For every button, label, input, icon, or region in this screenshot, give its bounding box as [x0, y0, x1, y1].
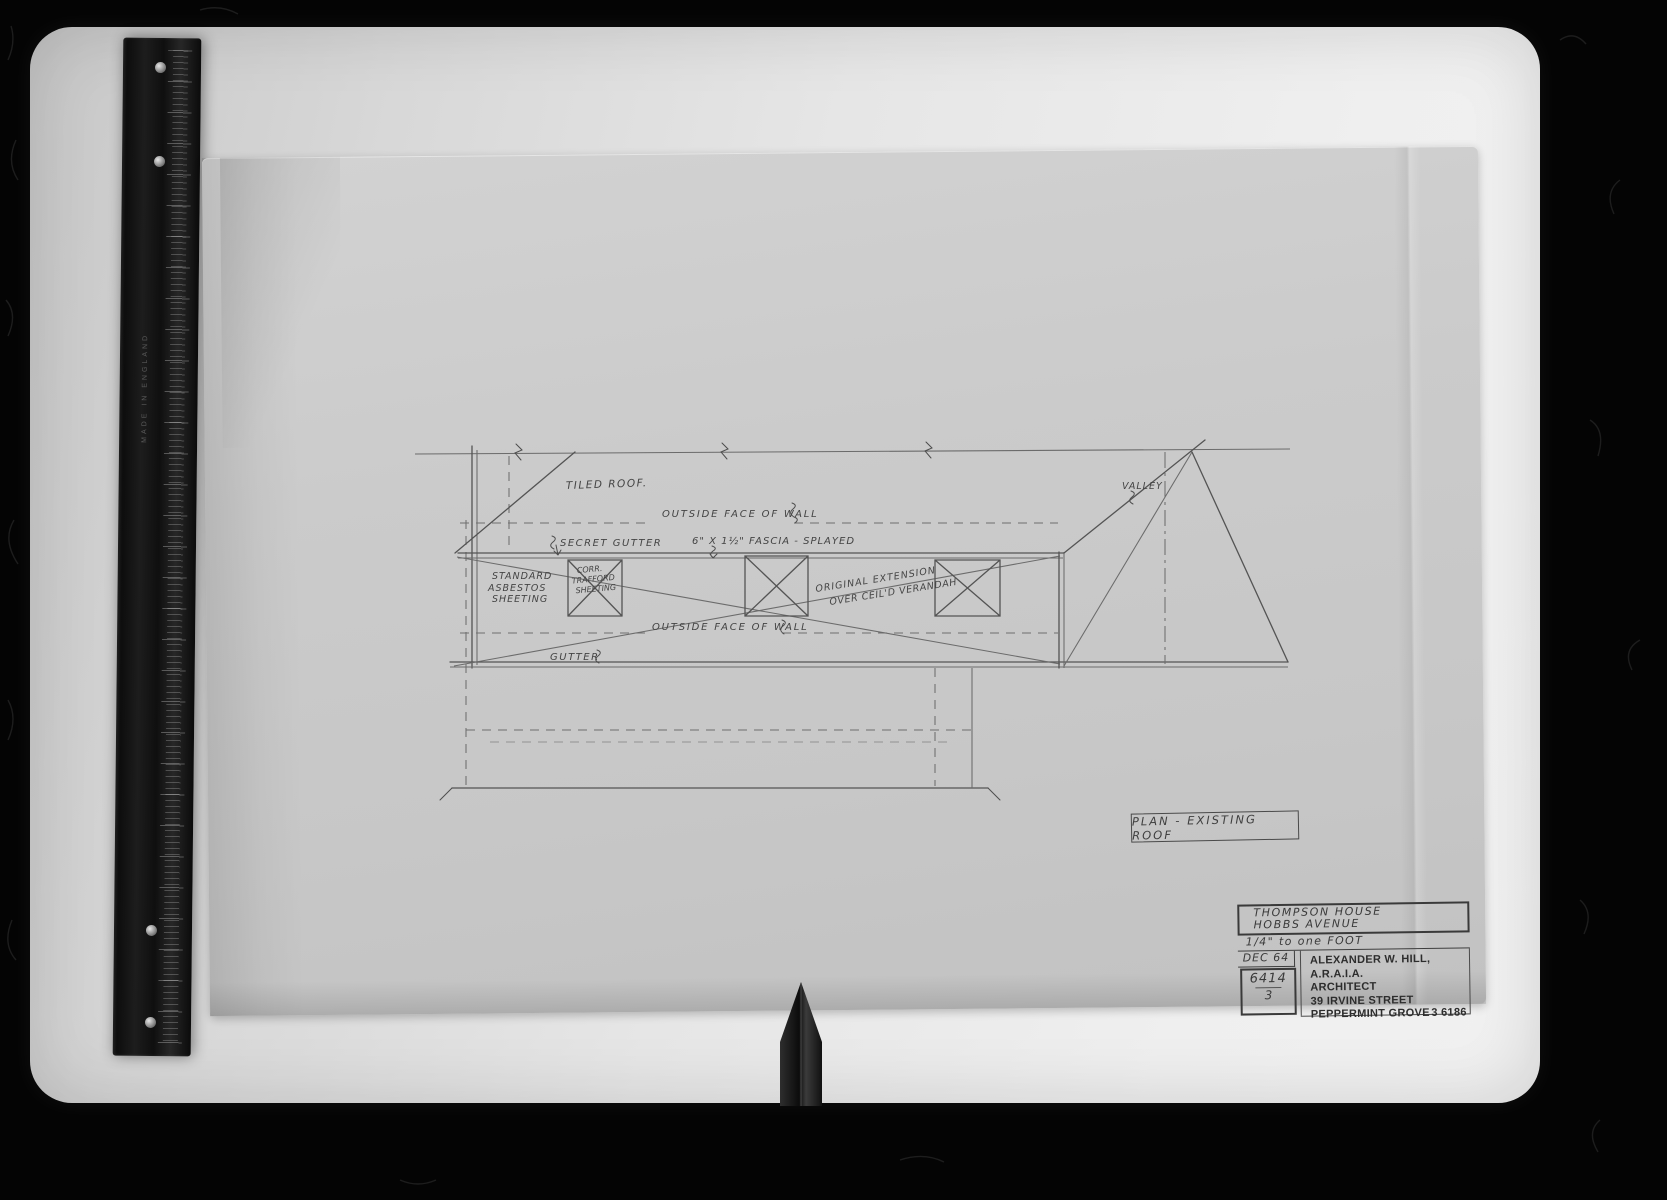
- photograph-of-roof-plan: MADE IN ENGLAND: [0, 0, 1667, 1200]
- title-block: THOMPSON HOUSE HOBBS AVENUE 1/4" to one …: [1237, 901, 1471, 1016]
- architect-stamp: ALEXANDER W. HILL, A.R.A.I.A. ARCHITECT …: [1310, 952, 1467, 1022]
- date-cell: DEC 64: [1238, 951, 1295, 968]
- project-line-2: HOBBS AVENUE: [1253, 916, 1467, 931]
- label-standard-sheeting-3: SHEETING: [492, 594, 548, 605]
- sheet-number: 3: [1242, 988, 1294, 1003]
- label-standard-sheeting-2: ASBESTOS: [487, 583, 546, 594]
- print-pointer-tab: [768, 978, 832, 1108]
- scale-row: 1/4" to one FOOT: [1238, 932, 1470, 951]
- label-valley: VALLEY: [1122, 481, 1163, 492]
- plan-title-box: PLAN - EXISTING ROOF: [1131, 810, 1300, 842]
- label-standard-sheeting-1: STANDARD: [492, 571, 552, 582]
- title-block-vertical-rule: [1300, 951, 1302, 1016]
- hand-lettered-labels: TILED ROOF. OUTSIDE FACE OF WALL SECRET …: [487, 477, 1163, 663]
- label-tiled-roof: TILED ROOF.: [566, 477, 648, 492]
- architect-suburb: PEPPERMINT GROVE: [1311, 1007, 1430, 1022]
- job-number: 6414: [1242, 971, 1294, 987]
- label-fascia: 6" X 1½" FASCIA - SPLAYED: [692, 535, 855, 547]
- project-name-box: THOMPSON HOUSE HOBBS AVENUE: [1237, 901, 1469, 935]
- job-number-box: 6414 3: [1240, 968, 1297, 1016]
- architect-phone: 3 6186: [1431, 1007, 1467, 1021]
- label-outside-face-wall-bottom: OUTSIDE FACE OF WALL: [652, 622, 808, 633]
- architect-name: ALEXANDER W. HILL, A.R.A.I.A.: [1310, 952, 1466, 981]
- plan-title-text: PLAN - EXISTING ROOF: [1132, 811, 1299, 842]
- pencil-linework: [415, 440, 1290, 800]
- label-gutter: GUTTER: [550, 652, 600, 663]
- label-secret-gutter: SECRET GUTTER: [560, 538, 662, 549]
- label-outside-face-wall-top: OUTSIDE FACE OF WALL: [662, 509, 818, 520]
